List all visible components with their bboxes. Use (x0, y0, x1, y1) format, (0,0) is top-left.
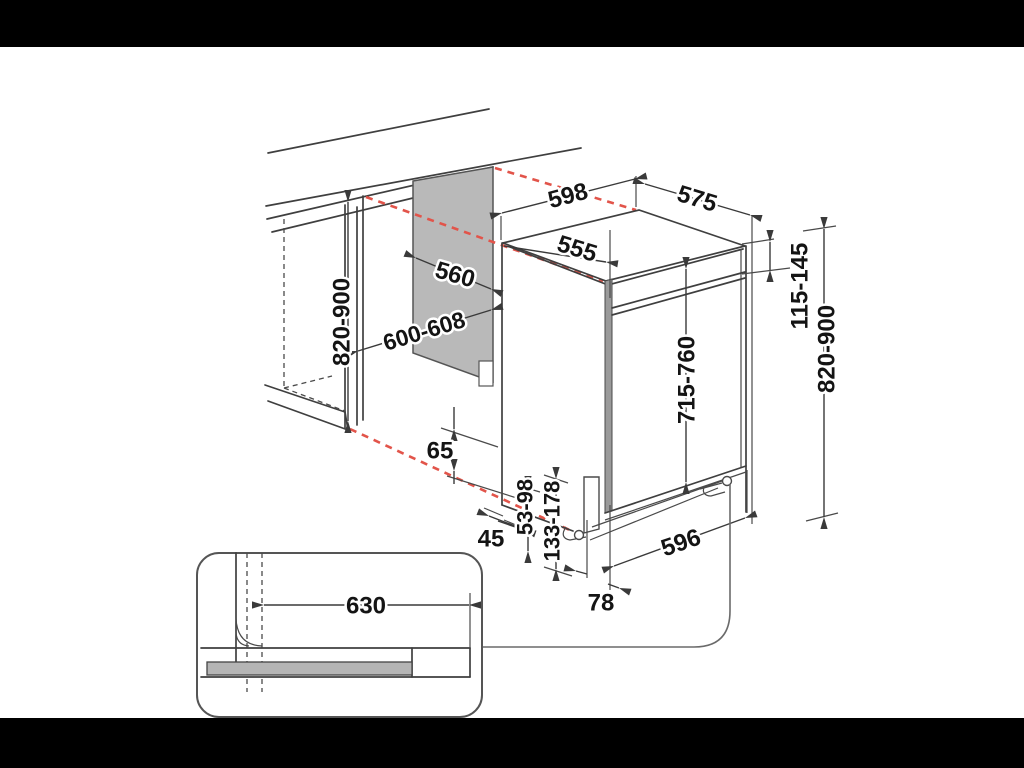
dim-label-foot-height-rear: 133-178 (540, 481, 565, 562)
installation-diagram: 598 575 555 560 600-608 820-900 115-145 (0, 0, 1024, 768)
control-panel-band (612, 272, 745, 308)
dim-label-overall-height: 820-900 (814, 305, 841, 393)
dim-label-niche-height: 820-900 (329, 278, 356, 366)
dim-label-front-offset: 45 (478, 526, 505, 553)
dim-label-plinth-clearance: 65 (427, 438, 454, 465)
dim-label-base-width: 596 (658, 524, 705, 563)
dim-label-top-inset-depth: 555 (554, 230, 600, 268)
dim-label-door-height: 715-760 (674, 336, 701, 424)
letterbox-top (0, 0, 1024, 47)
dim-label-foot-height-front: 53-98 (513, 479, 538, 535)
dim-label-hose-reach: 630 (346, 593, 386, 620)
detail-inset: 630 (197, 553, 482, 717)
installation-diagram-page: 598 575 555 560 600-608 820-900 115-145 (0, 0, 1024, 768)
dim-label-depth: 575 (674, 180, 720, 218)
door-edge-strip (605, 279, 612, 513)
dim-label-rear-foot-offset: 78 (588, 590, 615, 617)
panel-notch (479, 361, 493, 386)
kick-plate-cap (584, 477, 599, 533)
plinth-bar (207, 662, 412, 675)
dim-label-top-width: 598 (545, 178, 591, 214)
dim-label-top-gap: 115-145 (787, 243, 814, 330)
dimensions: 598 575 555 560 600-608 820-900 115-145 (329, 176, 841, 617)
letterbox-bottom (0, 718, 1024, 768)
